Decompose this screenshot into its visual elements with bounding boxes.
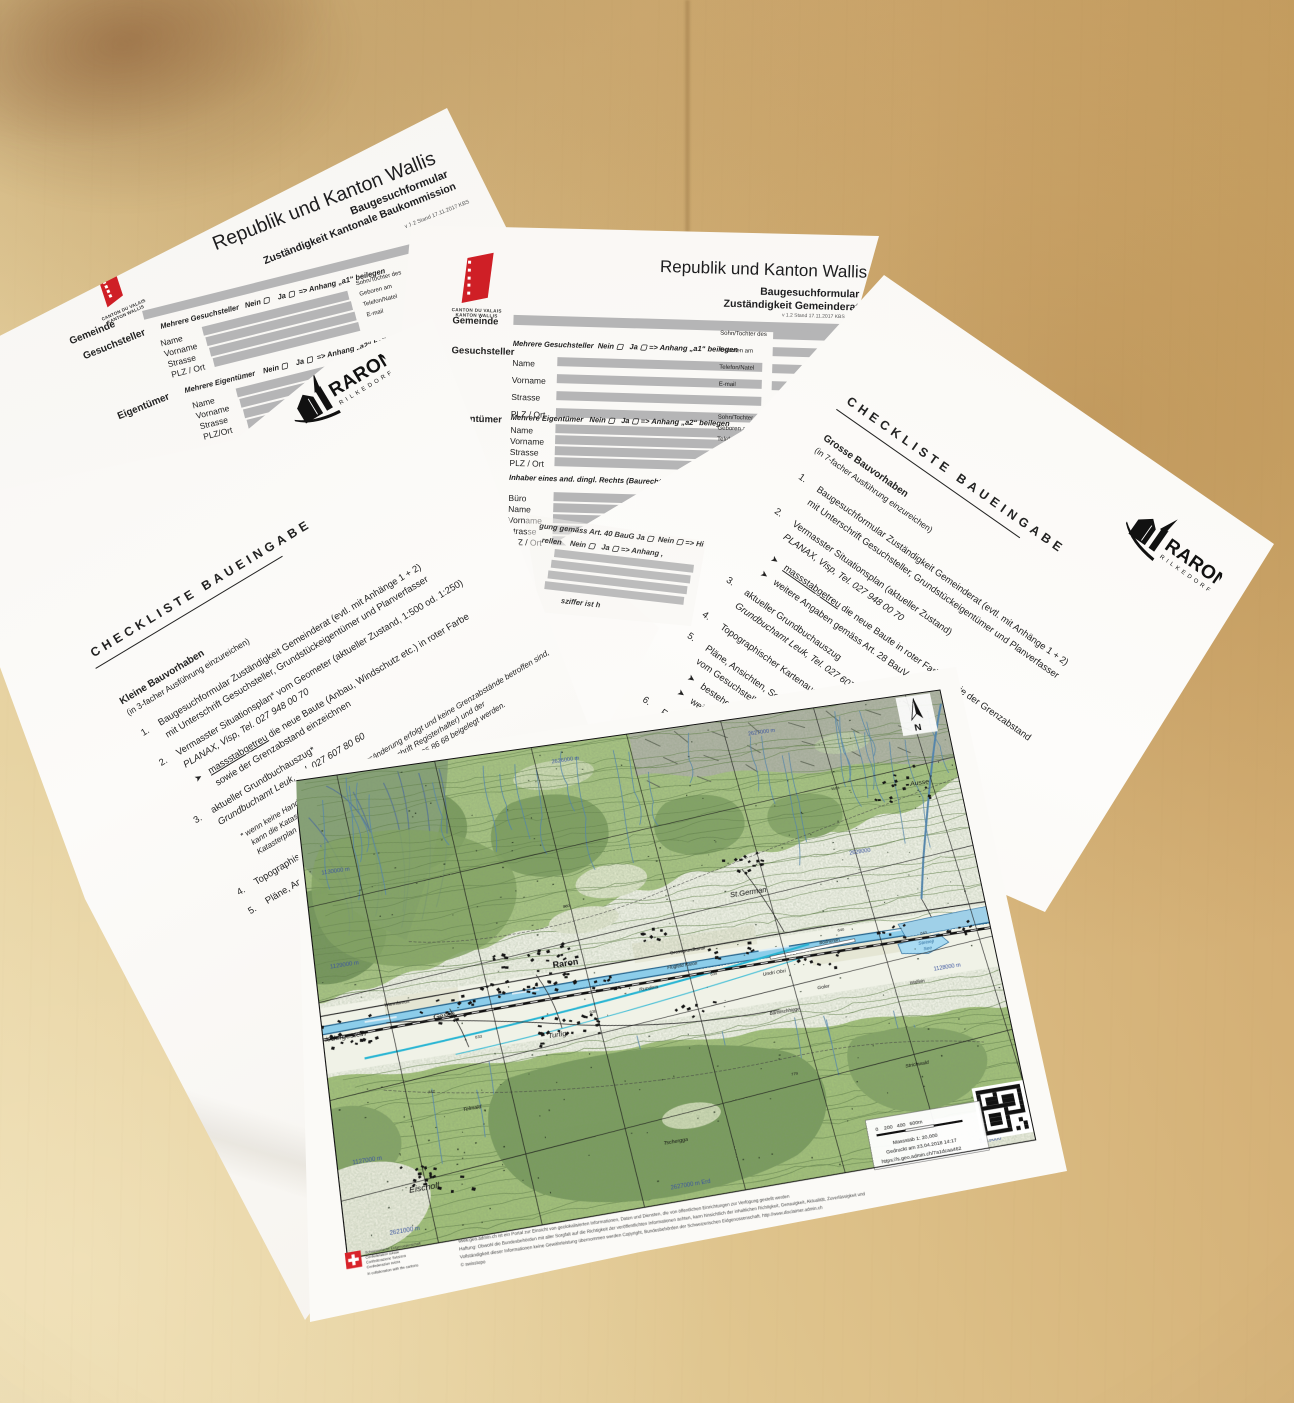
svg-text:© swisstopo: © swisstopo [460, 1258, 486, 1267]
